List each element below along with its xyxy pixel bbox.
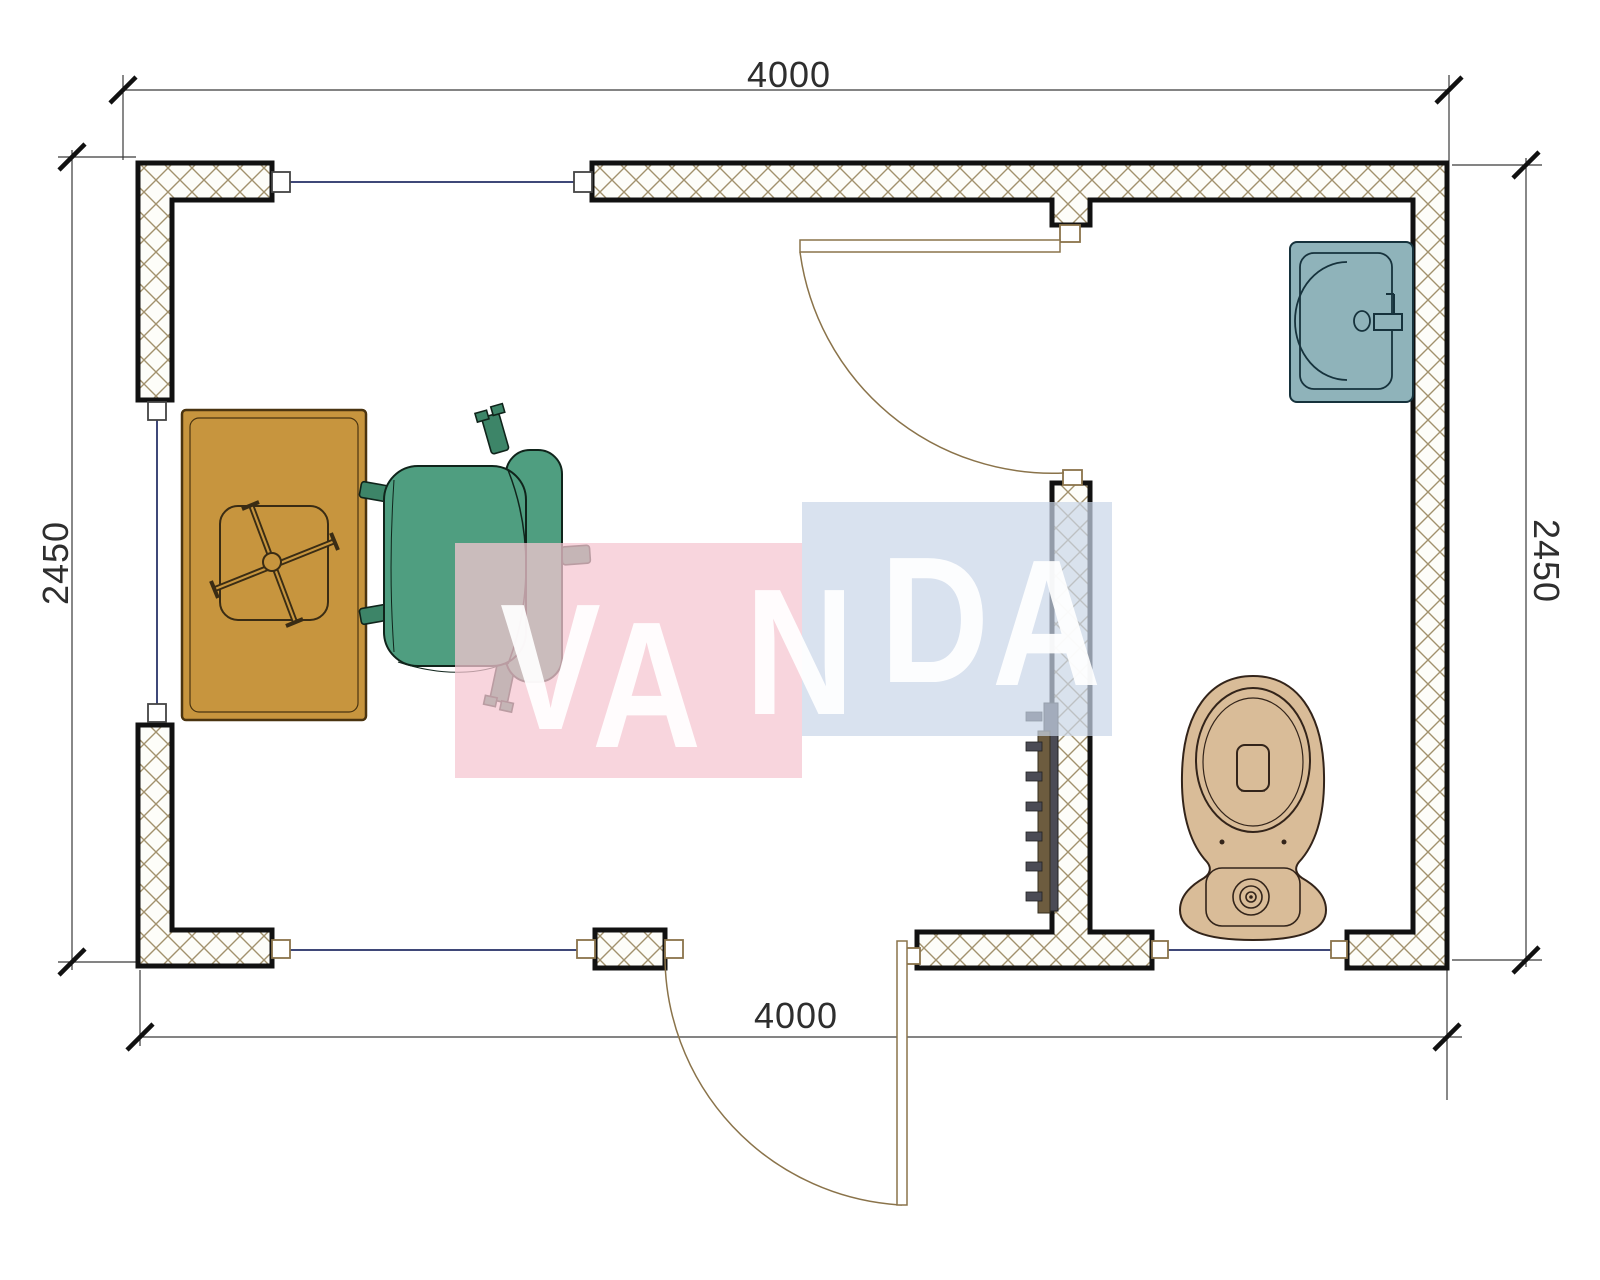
connector-box [574,172,592,192]
watermark-letter: N [745,563,854,743]
toilet-body [1180,676,1326,940]
floor-plan-page: V A N D A 4000 4000 2450 2450 [0,0,1600,1280]
dimension-label-right: 2450 [1527,499,1565,623]
entrance-door [665,941,907,1205]
connector-box [665,940,683,958]
watermark-letter: V [500,578,601,758]
connector-box [272,172,290,192]
watermark-letter: A [592,596,701,776]
connector-box [272,940,290,958]
desk [182,410,366,720]
toilet [1180,676,1326,940]
connector-box [577,940,595,958]
watermark-letter: A [992,534,1101,714]
sink [1290,242,1413,402]
connector-box [1331,941,1347,958]
dimension-label-top: 4000 [727,56,851,94]
connector-box [1063,470,1082,485]
watermark-letter: D [880,531,989,711]
wall-bottom-left-corner [138,725,272,966]
wall-top-left-corner [138,163,272,400]
dimension-label-bottom: 4000 [734,997,858,1035]
entrance-door-leaf [897,941,907,1205]
connector-box [1152,941,1168,958]
interior-door-leaf [800,240,1060,252]
dimension-label-left: 2450 [37,501,75,625]
interior-door [800,240,1064,473]
wall-entrance-pier [595,930,665,968]
connector-box [1060,225,1080,242]
connector-box [148,704,166,722]
connector-box [148,402,166,420]
entrance-door-swing-arc [665,952,902,1205]
interior-door-swing-arc [800,252,1064,473]
